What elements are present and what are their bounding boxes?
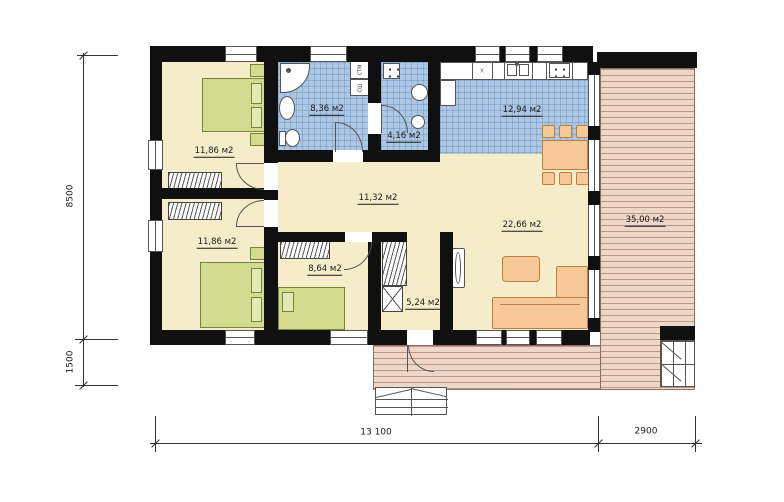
counter-divider	[472, 62, 473, 80]
step-line	[376, 399, 448, 400]
dimension-width-terrace: 2900	[635, 428, 658, 437]
dimension-tick-extension	[695, 416, 696, 452]
pillow	[251, 268, 262, 293]
terrace-steps	[660, 340, 695, 387]
wc-sink	[411, 84, 428, 101]
entry-steps	[375, 387, 447, 415]
window-top-kitchen-2	[505, 46, 530, 62]
pillow	[251, 107, 262, 128]
window-top-bedroom-1	[225, 46, 257, 62]
glass-wall-post	[588, 191, 600, 205]
window-top-kitchen-1	[475, 46, 500, 62]
counter-divider	[492, 62, 493, 80]
room-label-living: 22,66 м2	[502, 221, 543, 232]
wardrobe-kids-room	[280, 241, 330, 259]
entry-door-opening	[407, 330, 433, 345]
steps-diagonal	[376, 389, 412, 398]
wc-toilet	[411, 115, 425, 129]
nightstand	[250, 133, 265, 146]
sofa-seat-line	[500, 304, 580, 305]
dining-chair	[559, 172, 572, 185]
glass-wall-post	[588, 318, 600, 332]
steps-diagonal	[661, 364, 681, 382]
steps-diagonal	[661, 342, 681, 360]
interior-wall-hall-south-right	[372, 232, 407, 242]
interior-wall-hall-south-left	[266, 232, 345, 242]
water-heater	[383, 63, 400, 79]
washing-machine-label: СТМ	[358, 65, 363, 76]
pillow	[251, 83, 262, 104]
stove-burners	[549, 63, 570, 78]
steps-diagonal	[411, 388, 447, 397]
dining-chair	[542, 125, 555, 138]
window-bottom-kids-room	[330, 330, 368, 345]
interior-wall-corridor-left	[368, 242, 381, 330]
door-leaf-bedroom-2	[236, 226, 264, 227]
toilet-bowl	[285, 129, 300, 147]
dimension-tick-extension	[598, 416, 599, 452]
kitchen-counter-return	[440, 80, 456, 106]
terrace-wall-corner	[660, 326, 695, 340]
window-bottom-living-2	[506, 330, 530, 345]
door-opening-kids-room	[345, 232, 372, 242]
interior-wall-corridor-right	[440, 232, 453, 336]
glass-wall-post	[588, 256, 600, 270]
interior-wall-between-bedrooms	[150, 188, 266, 199]
pillow	[282, 292, 294, 312]
room-label-bedroom-1: 11,86 м2	[194, 147, 235, 158]
door-opening-bedroom-1	[264, 163, 278, 190]
shower-head-icon	[286, 68, 291, 73]
step-line	[376, 407, 448, 408]
dimension-width-main: 13 100	[360, 429, 392, 438]
room-label-wc: 4,16 м2	[386, 132, 421, 143]
dryer-machine-label: СШ	[358, 83, 363, 92]
wardrobe-corridor	[382, 240, 407, 286]
floor-plan: x СТМ СШ	[0, 0, 784, 502]
dimension-tick-extension	[155, 416, 156, 452]
wardrobe-bedroom-2	[168, 202, 222, 220]
counter-divider	[572, 62, 573, 80]
faucet-icon	[515, 62, 519, 66]
coffee-table	[502, 256, 540, 282]
room-label-corridor: 5,24 м2	[405, 299, 440, 310]
pillow	[251, 297, 262, 322]
window-left-bedroom-1	[148, 140, 163, 170]
door-opening-wc	[368, 103, 381, 134]
door-opening-bedroom-2	[264, 200, 278, 227]
glass-wall-post	[588, 126, 600, 140]
window-bottom-living-3	[536, 330, 562, 345]
window-top-bathroom	[310, 46, 347, 62]
room-label-kitchen: 12,94 м2	[502, 106, 543, 117]
interior-wall-bedrooms	[264, 62, 278, 330]
terrace-wall-top	[597, 52, 697, 68]
bathroom-sink	[279, 96, 295, 120]
hob-mark: x	[480, 68, 484, 75]
sofa-main-section	[492, 297, 588, 329]
room-label-kids-room: 8,64 м2	[307, 265, 342, 276]
room-label-terrace: 35,00 м2	[625, 216, 666, 227]
counter-divider	[546, 62, 547, 80]
window-bottom-bedroom-2	[225, 330, 255, 345]
cabinet-shaft	[382, 286, 403, 312]
room-label-hall: 11,32 м2	[358, 194, 399, 205]
dimension-line-bottom	[150, 443, 702, 444]
dining-chair	[559, 125, 572, 138]
counter-divider	[532, 62, 533, 80]
dining-chair	[542, 172, 555, 185]
dimension-height-porch: 1500	[67, 351, 76, 374]
window-bottom-living-1	[476, 330, 502, 345]
dining-table	[542, 140, 588, 170]
window-left-bedroom-2	[148, 220, 163, 252]
room-label-bathroom: 8,36 м2	[309, 105, 344, 116]
interior-wall-wc-kitchen	[428, 46, 440, 158]
dimension-height-main: 8500	[67, 185, 76, 208]
nightstand	[250, 247, 265, 260]
room-label-bedroom-2: 11,86 м2	[197, 238, 238, 249]
window-top-kitchen-3	[537, 46, 563, 62]
glass-wall-post	[588, 62, 600, 75]
nightstand	[250, 64, 265, 77]
step-line	[411, 388, 412, 416]
tv-screen	[455, 252, 461, 284]
kitchen-sink-basin	[519, 64, 529, 76]
counter-divider	[504, 62, 505, 80]
